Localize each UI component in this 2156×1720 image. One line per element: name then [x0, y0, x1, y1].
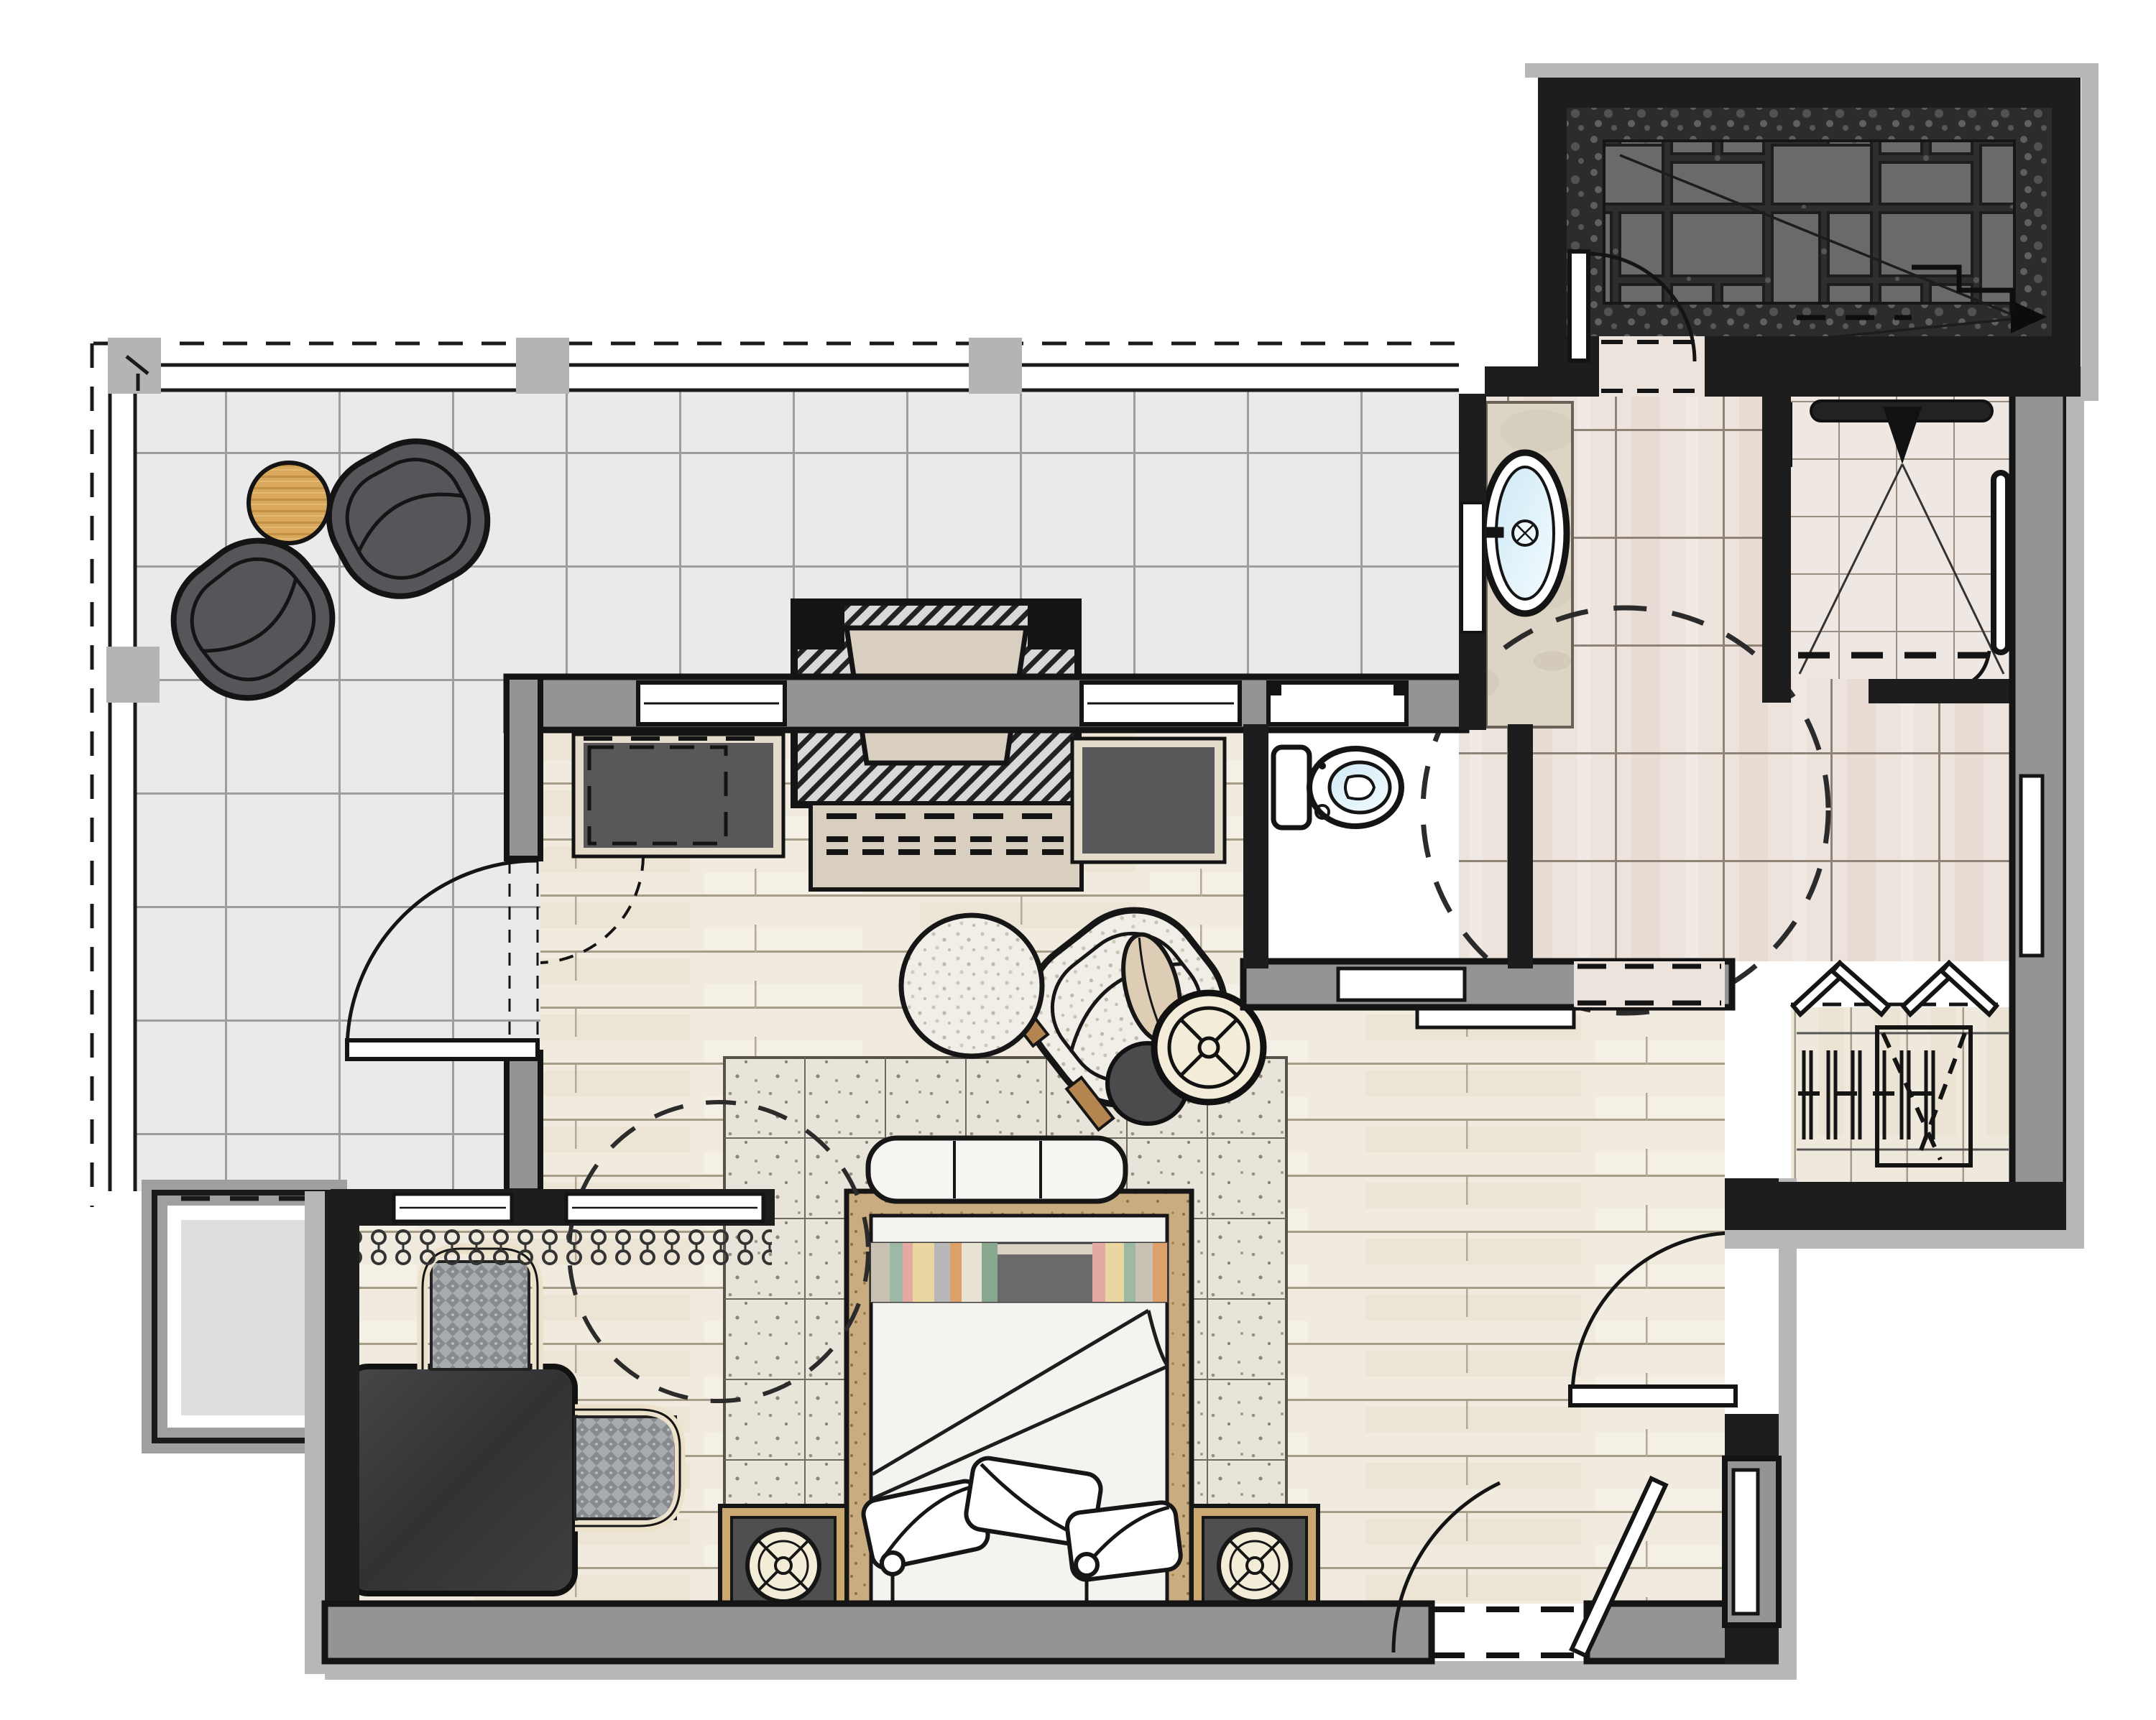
- sliding-panel: [1417, 1009, 1574, 1027]
- bed-striped-blanket: [871, 1243, 1167, 1302]
- floor-niche: [181, 1220, 309, 1415]
- wc-pocket-door: [1338, 968, 1465, 1000]
- window-bath: [1462, 503, 1483, 632]
- round-pouf: [901, 915, 1042, 1056]
- window-east: [2021, 776, 2042, 956]
- bath-left-wall: [1459, 394, 1486, 730]
- curtain-tassels: [358, 1229, 772, 1282]
- floor-plan-canvas: [0, 0, 2156, 1720]
- desk: [346, 1367, 575, 1594]
- alcove-window-wall: [331, 1189, 775, 1226]
- window-wc: [1268, 683, 1406, 724]
- grab-bar: [1994, 473, 2008, 652]
- guest-chair: [575, 1410, 680, 1526]
- floor-plan-page: [0, 0, 2156, 1720]
- toilet: [1273, 747, 1401, 828]
- bedroom-top-wall: [507, 677, 1466, 730]
- foot-bench: [868, 1138, 1125, 1201]
- console-right: [1072, 739, 1225, 862]
- window-right-wall: [1733, 1470, 1758, 1614]
- bed: [847, 1191, 1192, 1637]
- fireplace: [794, 602, 1082, 889]
- balcony-table: [249, 463, 329, 543]
